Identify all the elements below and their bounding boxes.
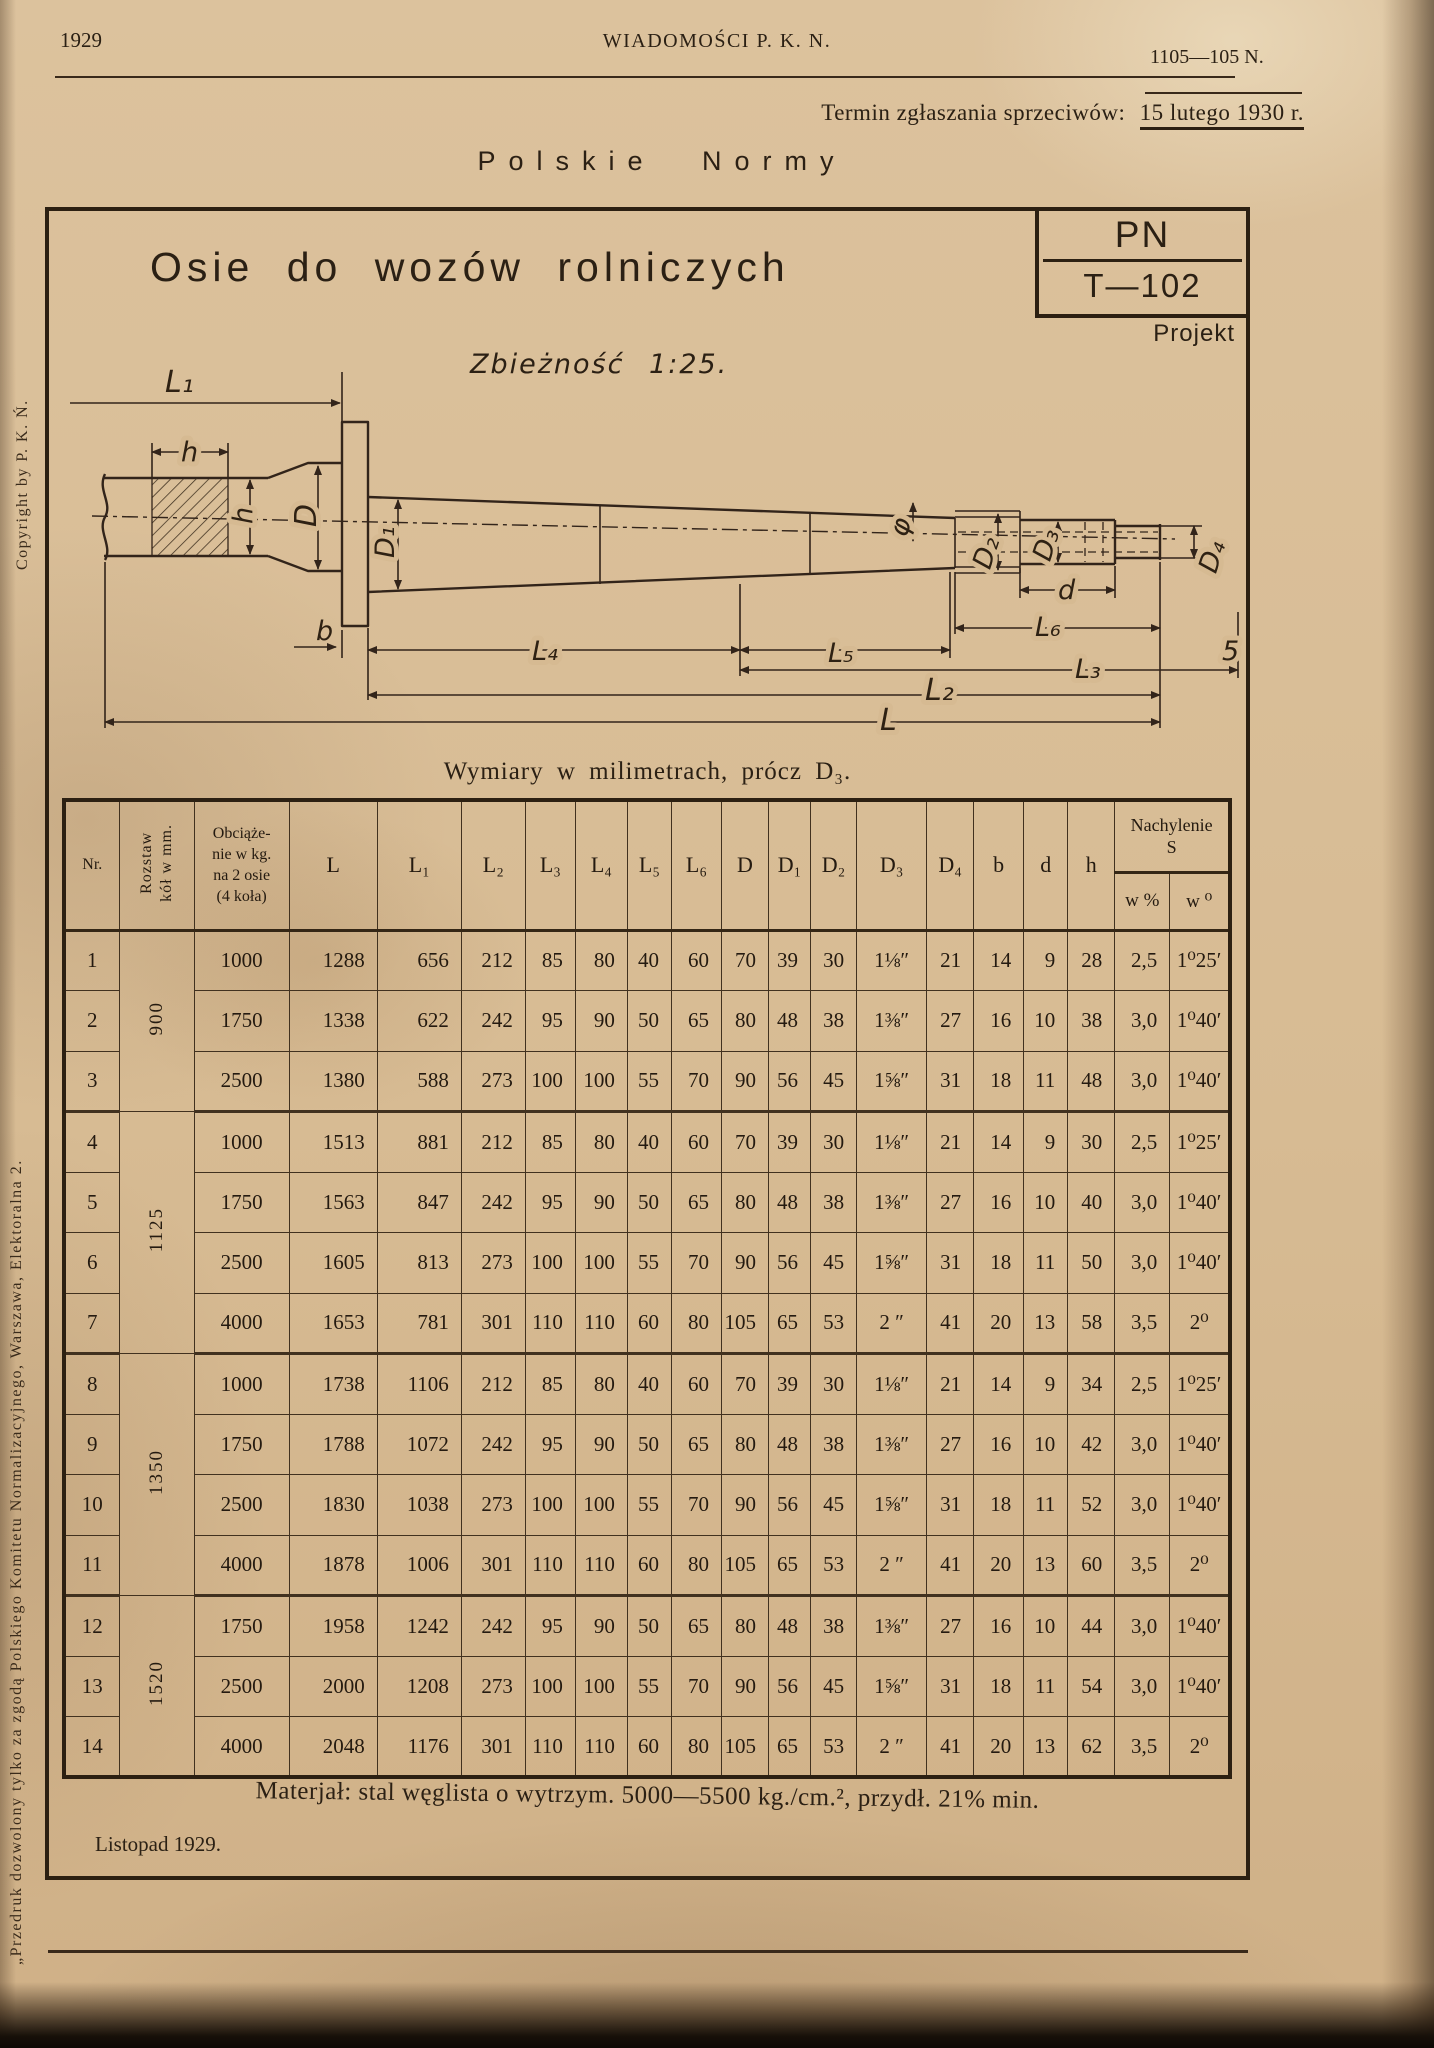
col-header-L5: L₅ (627, 800, 671, 930)
table-cell: 95 (525, 991, 575, 1052)
col-header-nachylenie: Nachylenie S (1115, 800, 1230, 872)
table-cell: 10 (1024, 991, 1068, 1052)
table-row: 32500138058827310010055709056451⅝″311811… (64, 1051, 1230, 1112)
table-cell: 1750 (194, 1172, 289, 1233)
header-rule (55, 76, 1235, 78)
issue-rule (1145, 92, 1302, 94)
dim-label-l6: L₆ (1035, 612, 1061, 643)
table-cell: 48 (769, 1172, 811, 1233)
table-cell: 1208 (377, 1656, 461, 1717)
table-cell: 2000 (289, 1656, 377, 1717)
table-cell: 16 (974, 991, 1024, 1052)
table-cell: 1⅜″ (857, 1172, 927, 1233)
table-row: 1325002000120827310010055709056451⅝″3118… (64, 1656, 1230, 1717)
table-cell: 90 (575, 991, 627, 1052)
table-cell: 1750 (194, 1414, 289, 1475)
table-cell: 110 (575, 1535, 627, 1596)
dim-label-l: L (880, 703, 897, 738)
table-row: 121520175019581242242959050658048381⅜″27… (64, 1596, 1230, 1657)
row-number-cell: 10 (64, 1475, 119, 1536)
table-cell: 1072 (377, 1414, 461, 1475)
table-cell: 301 (461, 1717, 525, 1778)
table-cell: 34 (1068, 1354, 1115, 1415)
table-cell: 1563 (289, 1172, 377, 1233)
table-cell: 1242 (377, 1596, 461, 1657)
table-cell: 1750 (194, 991, 289, 1052)
table-cell: 273 (461, 1051, 525, 1112)
row-number-cell: 6 (64, 1233, 119, 1294)
table-cell: 1⅝″ (857, 1233, 927, 1294)
table-cell: 80 (721, 991, 768, 1052)
col-header-D4: D₄ (927, 800, 974, 930)
table-cell: 1⁰40′ (1170, 1596, 1230, 1657)
rozstaw-value: 1520 (146, 1660, 168, 1706)
norm-mark: PN (1039, 211, 1246, 259)
table-cell: 80 (575, 1112, 627, 1173)
row-number-cell: 11 (64, 1535, 119, 1596)
table-cell: 50 (627, 991, 671, 1052)
row-number-cell: 3 (64, 1051, 119, 1112)
table-cell: 273 (461, 1656, 525, 1717)
table-cell: 70 (671, 1475, 721, 1536)
row-number-cell: 4 (64, 1112, 119, 1173)
table-cell: 1000 (194, 930, 289, 991)
table-cell: 2500 (194, 1656, 289, 1717)
table-cell: 65 (671, 991, 721, 1052)
table-cell: 50 (627, 1596, 671, 1657)
table-cell: 2,5 (1115, 930, 1170, 991)
row-number-cell: 7 (64, 1293, 119, 1354)
norm-number: T—102 (1039, 262, 1246, 310)
table-cell: 18 (974, 1475, 1024, 1536)
dim-label-d3: D₃ (1027, 525, 1066, 565)
table-row: 11400018781006301110110608010565532 ″412… (64, 1535, 1230, 1596)
rozstaw-group-cell: 900 (119, 930, 194, 1112)
table-cell: 41 (927, 1717, 974, 1778)
table-cell: 13 (1024, 1293, 1068, 1354)
table-cell: 90 (575, 1172, 627, 1233)
table-cell: 21 (927, 930, 974, 991)
table-cell: 1106 (377, 1354, 461, 1415)
table-cell: 80 (721, 1172, 768, 1233)
table-cell: 2⁰ (1170, 1717, 1230, 1778)
table-cell: 242 (461, 1172, 525, 1233)
table-cell: 1176 (377, 1717, 461, 1778)
table-cell: 1⅝″ (857, 1051, 927, 1112)
table-cell: 80 (671, 1535, 721, 1596)
table-cell: 105 (721, 1535, 768, 1596)
table-cell: 45 (811, 1233, 857, 1294)
col-header-w-percent: w % (1115, 872, 1170, 930)
table-cell: 1⅛″ (857, 930, 927, 991)
dim-label-h-side: h (228, 507, 259, 524)
table-cell: 16 (974, 1596, 1024, 1657)
copyright-note: Copyright by P. K. Ń. (14, 250, 32, 570)
table-cell: 27 (927, 1172, 974, 1233)
table-cell: 3,0 (1115, 1475, 1170, 1536)
table-cell: 14 (974, 1112, 1024, 1173)
col-header-L: L (289, 800, 377, 930)
table-cell: 1038 (377, 1475, 461, 1536)
table-cell: 40 (627, 930, 671, 991)
table-cell: 13 (1024, 1535, 1068, 1596)
table-cell: 53 (811, 1535, 857, 1596)
col-header-b: b (974, 800, 1024, 930)
table-cell: 1⅝″ (857, 1656, 927, 1717)
table-cell: 2048 (289, 1717, 377, 1778)
table-cell: 58 (1068, 1293, 1115, 1354)
col-header-L6: L₆ (671, 800, 721, 930)
table-cell: 95 (525, 1596, 575, 1657)
table-cell: 1006 (377, 1535, 461, 1596)
table-cell: 13 (1024, 1717, 1068, 1778)
objection-deadline: Termin zgłaszania sprzeciwów: 15 lutego … (821, 100, 1304, 126)
table-cell: 110 (525, 1535, 575, 1596)
table-cell: 9 (1024, 930, 1068, 991)
series-title: Polskie Normy (0, 146, 1379, 177)
scanned-standard-page: 1929 WIADOMOŚCI P. K. N. 1105—105 N. Ter… (0, 0, 1434, 2048)
table-cell: 31 (927, 1475, 974, 1536)
table-cell: 55 (627, 1051, 671, 1112)
table-cell: 3,0 (1115, 1414, 1170, 1475)
norm-title: Osie do wozów rolniczych (150, 244, 790, 291)
table-cell: 14 (974, 930, 1024, 991)
table-cell: 80 (575, 1354, 627, 1415)
table-cell: 110 (525, 1717, 575, 1778)
table-cell: 1⅜″ (857, 1596, 927, 1657)
table-cell: 1000 (194, 1112, 289, 1173)
table-cell: 65 (769, 1535, 811, 1596)
table-cell: 3,0 (1115, 1656, 1170, 1717)
table-cell: 242 (461, 1414, 525, 1475)
table-cell: 881 (377, 1112, 461, 1173)
row-number-cell: 1 (64, 930, 119, 991)
table-cell: 31 (927, 1233, 974, 1294)
dim-label-d-small: d (1058, 575, 1076, 606)
deadline-label: Termin zgłaszania sprzeciwów: (821, 100, 1125, 125)
table-cell: 70 (721, 1112, 768, 1173)
table-cell: 56 (769, 1233, 811, 1294)
table-cell: 4000 (194, 1535, 289, 1596)
table-cell: 50 (627, 1172, 671, 1233)
table-cell: 31 (927, 1656, 974, 1717)
table-cell: 273 (461, 1475, 525, 1536)
dim-label-d1: D₁ (370, 526, 401, 558)
table-cell: 847 (377, 1172, 461, 1233)
table-cell: 16 (974, 1172, 1024, 1233)
rozstaw-value: 1350 (146, 1449, 168, 1495)
dim-label-chamfer: 5 (1222, 636, 1239, 667)
table-cell: 60 (671, 1354, 721, 1415)
table-cell: 1⁰40′ (1170, 1656, 1230, 1717)
row-number-cell: 2 (64, 991, 119, 1052)
table-cell: 70 (721, 930, 768, 991)
table-cell: 95 (525, 1414, 575, 1475)
table-cell: 2 ″ (857, 1293, 927, 1354)
dim-label-d-major: D (289, 504, 324, 527)
table-cell: 38 (811, 991, 857, 1052)
table-cell: 3,0 (1115, 1233, 1170, 1294)
table-cell: 39 (769, 1354, 811, 1415)
table-cell: 9 (1024, 1354, 1068, 1415)
table-cell: 48 (769, 1596, 811, 1657)
table-cell: 10 (1024, 1414, 1068, 1475)
table-cell: 1878 (289, 1535, 377, 1596)
table-cell: 110 (525, 1293, 575, 1354)
dim-label-l3: L₃ (1075, 654, 1101, 685)
table-cell: 1⁰25′ (1170, 1112, 1230, 1173)
table-cell: 3,0 (1115, 991, 1170, 1052)
table-cell: 301 (461, 1293, 525, 1354)
table-cell: 1⅛″ (857, 1112, 927, 1173)
col-header-L3: L₃ (525, 800, 575, 930)
col-header-d: d (1024, 800, 1068, 930)
table-cell: 11 (1024, 1233, 1068, 1294)
table-cell: 16 (974, 1414, 1024, 1475)
table-cell: 622 (377, 991, 461, 1052)
table-cell: 38 (811, 1596, 857, 1657)
table-row: 81350100017381106212858040607039301⅛″211… (64, 1354, 1230, 1415)
table-cell: 1653 (289, 1293, 377, 1354)
table-cell: 11 (1024, 1475, 1068, 1536)
norm-code-box: PN T—102 (1035, 211, 1246, 318)
table-cell: 39 (769, 1112, 811, 1173)
table-cell: 20 (974, 1535, 1024, 1596)
table-cell: 212 (461, 930, 525, 991)
table-cell: 40 (1068, 1172, 1115, 1233)
table-cell: 2 ″ (857, 1535, 927, 1596)
rozstaw-group-cell: 1520 (119, 1596, 194, 1778)
table-cell: 2500 (194, 1233, 289, 1294)
dim-label-l4: L₄ (532, 636, 558, 667)
table-cell: 10 (1024, 1596, 1068, 1657)
table-cell: 100 (575, 1656, 627, 1717)
table-cell: 90 (575, 1596, 627, 1657)
table-row: 190010001288656212858040607039301⅛″21149… (64, 930, 1230, 991)
table-cell: 38 (1068, 991, 1115, 1052)
row-number-cell: 14 (64, 1717, 119, 1778)
table-cell: 1⅝″ (857, 1475, 927, 1536)
table-cell: 2,5 (1115, 1354, 1170, 1415)
table-cell: 30 (811, 1354, 857, 1415)
table-cell: 90 (721, 1051, 768, 1112)
table-cell: 53 (811, 1717, 857, 1778)
table-cell: 41 (927, 1293, 974, 1354)
issue-number: 1105—105 N. (1150, 46, 1264, 69)
axle-technical-drawing: L₁ h h D D₁ φ D₂ D₃ D₄ d b L₄ L₅ L₆ L₃ (45, 330, 1250, 785)
table-cell: 1⁰40′ (1170, 1233, 1230, 1294)
page-bottom-edge (0, 1982, 1434, 2048)
table-cell: 1⁰40′ (1170, 991, 1230, 1052)
table-row: 217501338622242959050658048381⅜″27161038… (64, 991, 1230, 1052)
table-cell: 80 (721, 1596, 768, 1657)
col-header-L4: L₄ (575, 800, 627, 930)
table-cell: 80 (671, 1717, 721, 1778)
table-cell: 30 (1068, 1112, 1115, 1173)
table-cell: 100 (525, 1656, 575, 1717)
row-number-cell: 9 (64, 1414, 119, 1475)
table-cell: 1⁰25′ (1170, 1354, 1230, 1415)
table-cell: 3,5 (1115, 1535, 1170, 1596)
table-cell: 18 (974, 1233, 1024, 1294)
table-cell: 813 (377, 1233, 461, 1294)
table-cell: 65 (769, 1717, 811, 1778)
table-cell: 588 (377, 1051, 461, 1112)
table-cell: 273 (461, 1233, 525, 1294)
table-row: 1025001830103827310010055709056451⅝″3118… (64, 1475, 1230, 1536)
table-cell: 212 (461, 1112, 525, 1173)
table-cell: 2,5 (1115, 1112, 1170, 1173)
col-header-L1: L₁ (377, 800, 461, 930)
table-cell: 53 (811, 1293, 857, 1354)
rozstaw-header-text: Rozstaw kół w mm. (137, 824, 177, 902)
table-cell: 50 (627, 1414, 671, 1475)
table-cell: 1830 (289, 1475, 377, 1536)
table-cell: 3,5 (1115, 1293, 1170, 1354)
table-cell: 80 (575, 930, 627, 991)
table-cell: 1⁰40′ (1170, 1172, 1230, 1233)
table-cell: 1738 (289, 1354, 377, 1415)
table-cell: 21 (927, 1112, 974, 1173)
table-cell: 2500 (194, 1051, 289, 1112)
table-cell: 3,0 (1115, 1172, 1170, 1233)
table-cell: 1750 (194, 1596, 289, 1657)
table-cell: 80 (671, 1293, 721, 1354)
table-cell: 38 (811, 1414, 857, 1475)
table-cell: 100 (575, 1051, 627, 1112)
table-cell: 100 (575, 1475, 627, 1536)
table-cell: 10 (1024, 1172, 1068, 1233)
table-cell: 212 (461, 1354, 525, 1415)
table-cell: 100 (525, 1051, 575, 1112)
table-cell: 1788 (289, 1414, 377, 1475)
table-cell: 70 (721, 1354, 768, 1415)
table-cell: 18 (974, 1656, 1024, 1717)
table-cell: 1605 (289, 1233, 377, 1294)
row-number-cell: 5 (64, 1172, 119, 1233)
table-cell: 65 (671, 1596, 721, 1657)
table-cell: 100 (575, 1233, 627, 1294)
col-header-obciazenie: Obciąże- nie w kg. na 2 osie (4 koła) (194, 800, 289, 930)
table-row: 14400020481176301110110608010565532 ″412… (64, 1717, 1230, 1778)
rozstaw-group-cell: 1350 (119, 1354, 194, 1596)
dim-label-l2: L₂ (925, 673, 954, 708)
bottom-rule (48, 1950, 1248, 1953)
col-header-D: D (721, 800, 768, 930)
rozstaw-value: 900 (146, 1001, 168, 1036)
table-cell: 1288 (289, 930, 377, 991)
table-caption: Wymiary w milimetrach, prócz D₃. (45, 758, 1250, 786)
table-cell: 41 (927, 1535, 974, 1596)
table-cell: 30 (811, 1112, 857, 1173)
col-header-D3: D₃ (857, 800, 927, 930)
table-cell: 1380 (289, 1051, 377, 1112)
table-row: 9175017881072242959050658048381⅜″2716104… (64, 1414, 1230, 1475)
col-header-rozstaw: Rozstaw kół w mm. (119, 800, 194, 930)
table-cell: 1338 (289, 991, 377, 1052)
table-row: 740001653781301110110608010565532 ″41201… (64, 1293, 1230, 1354)
table-cell: 21 (927, 1354, 974, 1415)
table-cell: 60 (1068, 1535, 1115, 1596)
table-cell: 45 (811, 1475, 857, 1536)
rozstaw-value: 1125 (146, 1207, 168, 1252)
table-cell: 100 (525, 1233, 575, 1294)
deadline-date: 15 lutego 1930 r. (1140, 100, 1304, 130)
table-cell: 110 (575, 1717, 627, 1778)
table-cell: 40 (627, 1112, 671, 1173)
table-cell: 242 (461, 1596, 525, 1657)
table-cell: 80 (721, 1414, 768, 1475)
dimensions-table: Nr. Rozstaw kół w mm. Obciąże- nie w kg.… (62, 798, 1232, 1779)
table-cell: 781 (377, 1293, 461, 1354)
table-cell: 27 (927, 1414, 974, 1475)
table-cell: 1958 (289, 1596, 377, 1657)
table-cell: 90 (721, 1475, 768, 1536)
row-number-cell: 13 (64, 1656, 119, 1717)
table-cell: 40 (627, 1354, 671, 1415)
table-cell: 85 (525, 930, 575, 991)
table-cell: 14 (974, 1354, 1024, 1415)
dim-label-l5: L₅ (828, 638, 854, 669)
table-cell: 11 (1024, 1051, 1068, 1112)
table-cell: 85 (525, 1112, 575, 1173)
table-cell: 48 (769, 1414, 811, 1475)
table-cell: 110 (575, 1293, 627, 1354)
col-header-nr: Nr. (64, 800, 119, 930)
table-cell: 60 (627, 1293, 671, 1354)
table-cell: 100 (525, 1475, 575, 1536)
col-header-h: h (1068, 800, 1115, 930)
table-cell: 38 (811, 1172, 857, 1233)
reprint-permission-note: „Przedruk dozwolony tylko za zgodą Polsk… (8, 535, 26, 1965)
table-cell: 1⁰40′ (1170, 1414, 1230, 1475)
table-cell: 60 (671, 1112, 721, 1173)
table-cell: 60 (627, 1717, 671, 1778)
table-cell: 50 (1068, 1233, 1115, 1294)
table-cell: 27 (927, 1596, 974, 1657)
table-cell: 20 (974, 1293, 1024, 1354)
table-cell: 52 (1068, 1475, 1115, 1536)
table-cell: 105 (721, 1293, 768, 1354)
table-cell: 65 (769, 1293, 811, 1354)
table-cell: 1⁰40′ (1170, 1475, 1230, 1536)
table-cell: 1⁰25′ (1170, 930, 1230, 991)
table-cell: 70 (671, 1051, 721, 1112)
table-cell: 55 (627, 1656, 671, 1717)
table-cell: 301 (461, 1535, 525, 1596)
table-cell: 62 (1068, 1717, 1115, 1778)
table-cell: 60 (671, 930, 721, 991)
table-cell: 90 (721, 1233, 768, 1294)
table-cell: 45 (811, 1051, 857, 1112)
section-hatch (152, 478, 228, 556)
table-cell: 20 (974, 1717, 1024, 1778)
nachylenie-sub: S (1116, 836, 1227, 858)
nachylenie-title: Nachylenie (1116, 814, 1227, 836)
table-cell: 56 (769, 1051, 811, 1112)
issue-date: Listopad 1929. (95, 1832, 221, 1857)
table-cell: 2⁰ (1170, 1293, 1230, 1354)
table-cell: 56 (769, 1656, 811, 1717)
dim-label-b: b (316, 616, 333, 647)
table-cell: 85 (525, 1354, 575, 1415)
table-cell: 90 (721, 1656, 768, 1717)
table-cell: 54 (1068, 1656, 1115, 1717)
table-cell: 11 (1024, 1656, 1068, 1717)
table-cell: 56 (769, 1475, 811, 1536)
table-cell: 1⅛″ (857, 1354, 927, 1415)
table-cell: 70 (671, 1656, 721, 1717)
